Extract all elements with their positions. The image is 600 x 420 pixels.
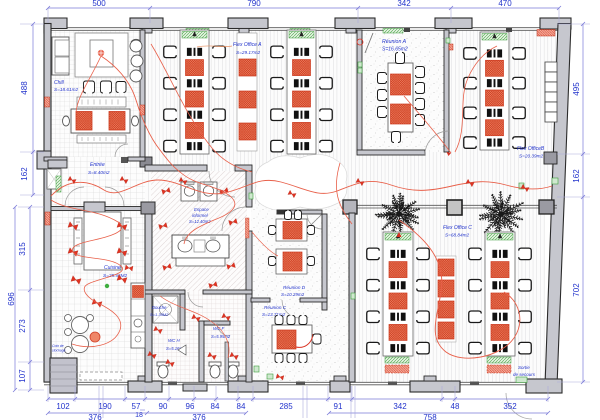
svg-text:Flex Office A: Flex Office A [233, 42, 262, 48]
svg-text:S=10.29m2: S=10.29m2 [281, 292, 305, 297]
svg-text:stockage: stockage [52, 349, 66, 353]
svg-text:informel: informel [192, 213, 209, 218]
svg-text:Flex Office C: Flex Office C [443, 225, 472, 231]
svg-text:190: 190 [98, 402, 112, 411]
svg-text:Réunion A: Réunion A [382, 39, 407, 45]
svg-text:Flex OfficeB: Flex OfficeB [517, 146, 545, 152]
svg-text:376: 376 [88, 413, 102, 420]
svg-text:500: 500 [92, 0, 106, 8]
svg-text:107: 107 [18, 369, 27, 383]
svg-text:84: 84 [237, 402, 246, 411]
svg-text:162: 162 [20, 167, 29, 181]
svg-text:S=18.61m2: S=18.61m2 [54, 87, 78, 92]
svg-text:Chill: Chill [54, 80, 65, 86]
svg-text:102: 102 [56, 402, 70, 411]
svg-text:702: 702 [572, 283, 581, 297]
svg-text:Réunion D: Réunion D [283, 285, 306, 290]
svg-text:342: 342 [393, 402, 407, 411]
svg-text:WC H: WC H [168, 338, 181, 343]
svg-text:696: 696 [7, 292, 16, 306]
svg-text:315: 315 [18, 242, 27, 256]
svg-text:352: 352 [503, 402, 517, 411]
svg-text:90: 90 [159, 402, 168, 411]
svg-text:285: 285 [279, 402, 293, 411]
svg-text:273: 273 [18, 319, 27, 333]
svg-text:S=16.65m2: S=16.65m2 [382, 47, 408, 53]
svg-text:Espace: Espace [194, 207, 209, 212]
svg-text:Sortie: Sortie [518, 365, 530, 370]
svg-text:de secours: de secours [513, 372, 536, 377]
svg-text:S=8.40m2: S=8.40m2 [88, 170, 110, 175]
svg-text:S=5.95m2: S=5.95m2 [211, 334, 231, 339]
svg-text:96: 96 [186, 402, 195, 411]
svg-text:342: 342 [397, 0, 411, 8]
svg-text:758: 758 [423, 413, 437, 420]
svg-text:48: 48 [451, 402, 460, 411]
svg-text:Coin de: Coin de [52, 344, 64, 348]
svg-text:S=1.35M2: S=1.35M2 [150, 312, 169, 317]
svg-text:84: 84 [211, 402, 220, 411]
svg-text:470: 470 [498, 0, 512, 8]
svg-text:790: 790 [247, 0, 261, 8]
svg-text:Cuisine: Cuisine [104, 265, 121, 271]
svg-text:WC F: WC F [213, 326, 225, 331]
svg-text:91: 91 [334, 402, 343, 411]
svg-text:S=29.17m2: S=29.17m2 [236, 50, 260, 55]
svg-text:S=12.40m2: S=12.40m2 [189, 219, 211, 224]
svg-text:495: 495 [572, 82, 581, 96]
svg-text:57: 57 [132, 402, 141, 411]
svg-text:162: 162 [572, 169, 581, 183]
svg-text:Douche: Douche [152, 305, 167, 310]
svg-text:Réunion C: Réunion C [264, 305, 287, 310]
svg-text:Entrée: Entrée [90, 162, 105, 168]
svg-text:376: 376 [192, 413, 206, 420]
svg-text:S=20.39m2: S=20.39m2 [519, 154, 543, 159]
svg-text:S=68.84m2: S=68.84m2 [445, 233, 469, 238]
svg-text:488: 488 [20, 81, 29, 95]
